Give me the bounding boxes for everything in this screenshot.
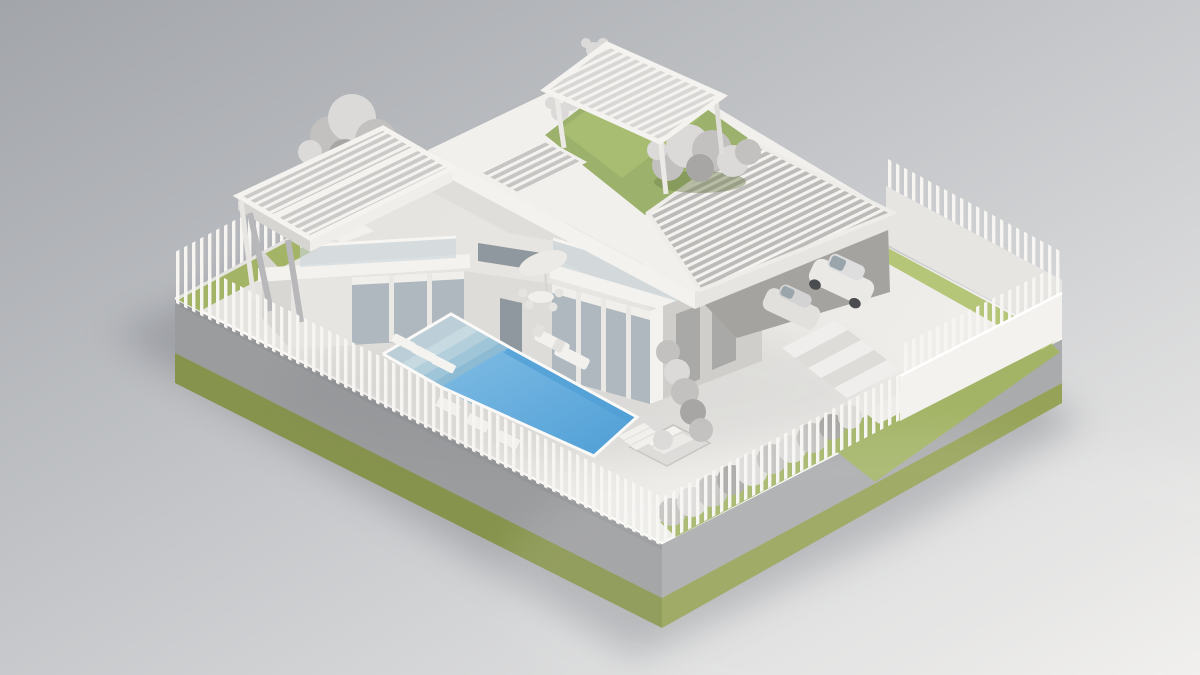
- villa-render: [0, 0, 1200, 675]
- glass-mullion-3: [626, 305, 631, 399]
- wing-mullion-1: [389, 275, 394, 342]
- dining-table: [528, 291, 554, 303]
- glass-mullion-2: [601, 298, 606, 392]
- glass-mullion-1: [576, 291, 581, 385]
